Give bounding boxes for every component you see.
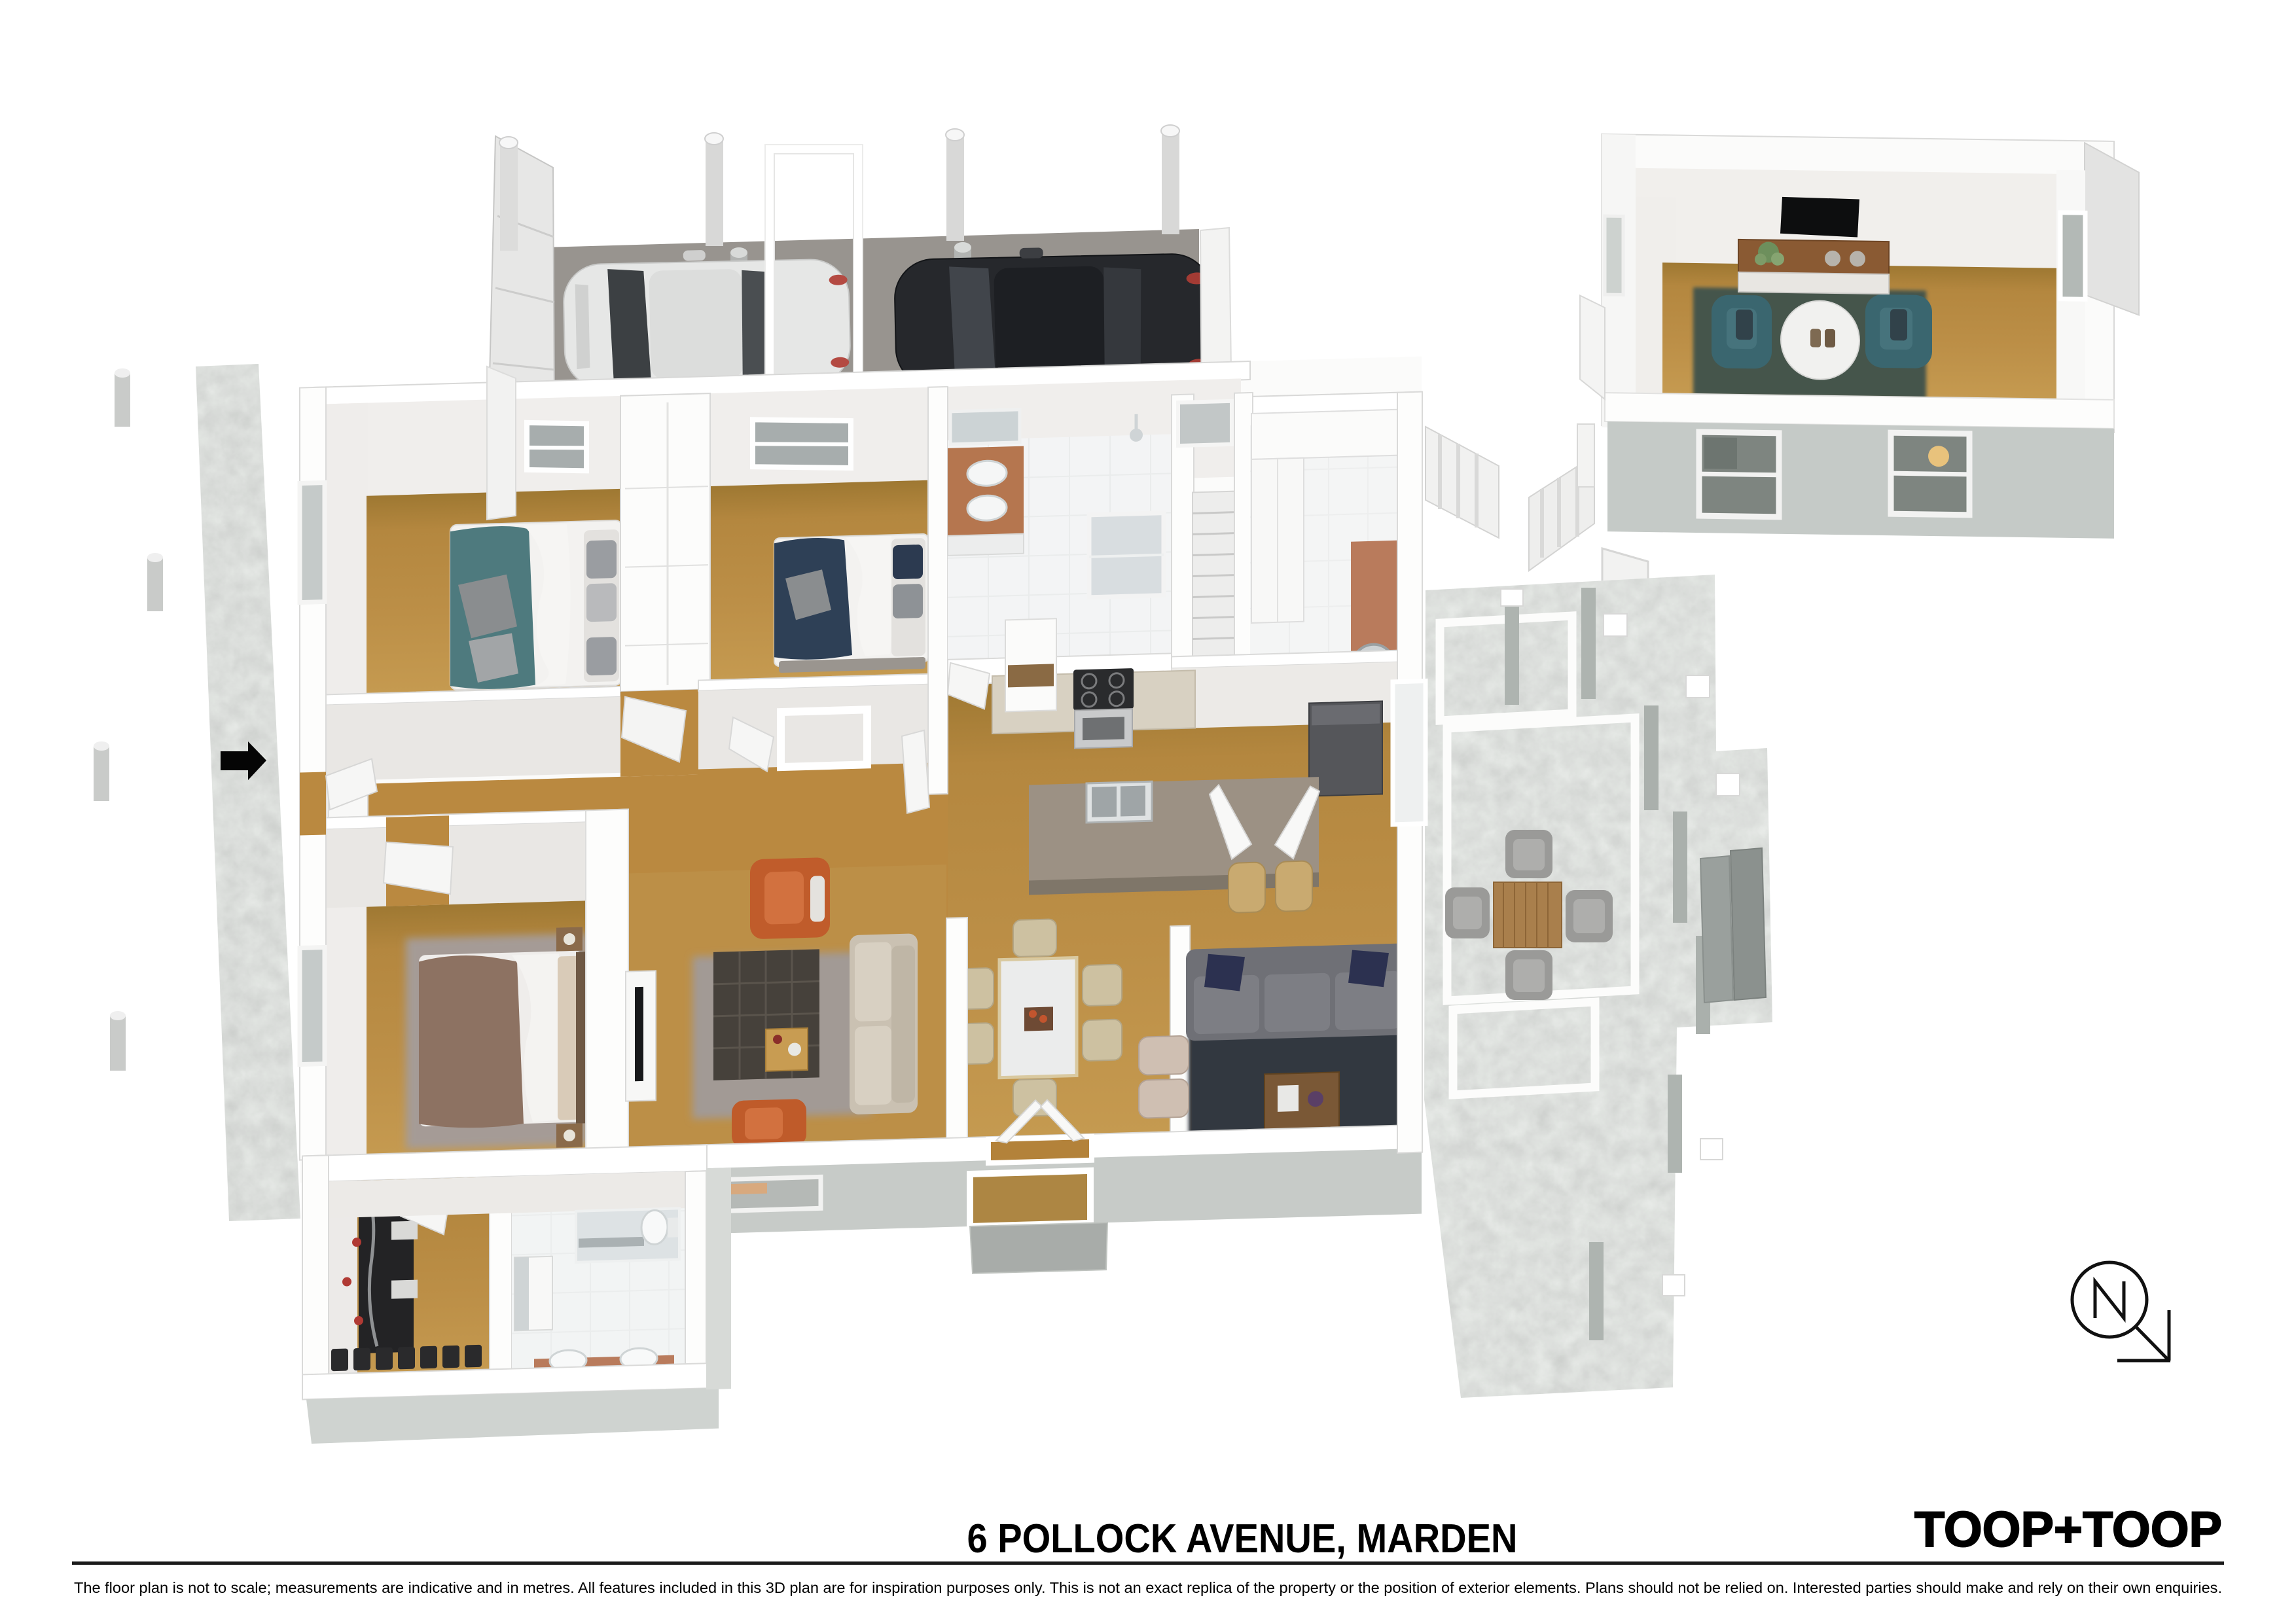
svg-text:TOOP+TOOP: TOOP+TOOP xyxy=(1914,1502,2222,1558)
svg-text:The floor plan is not to scale: The floor plan is not to scale; measurem… xyxy=(74,1579,2222,1596)
svg-text:6 POLLOCK AVENUE, MARDEN: 6 POLLOCK AVENUE, MARDEN xyxy=(967,1516,1518,1561)
